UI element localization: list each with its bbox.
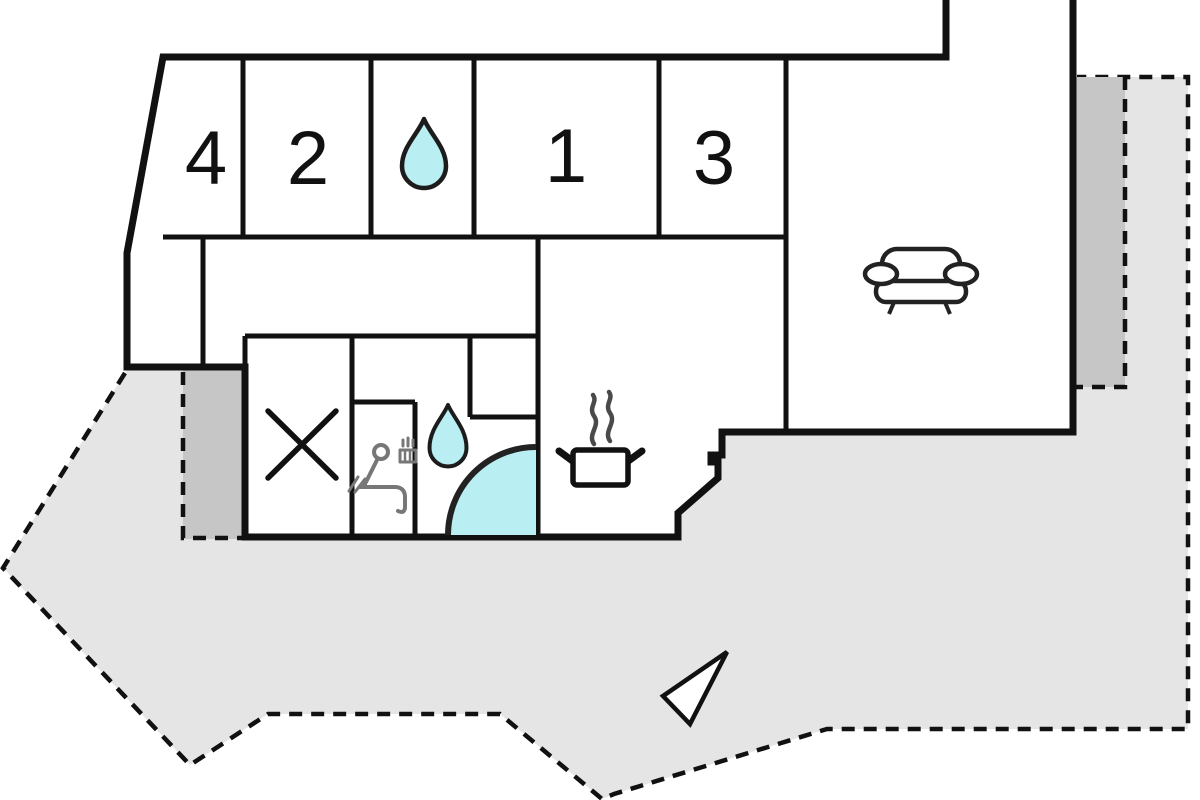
room-3-label: 3	[693, 116, 735, 201]
sofa-armrest-left	[865, 264, 897, 284]
room-4-label: 4	[185, 116, 227, 201]
room-1-label: 1	[545, 114, 587, 199]
floor-plan-canvas: 4 2 1 3	[0, 0, 1200, 800]
pot-body	[573, 450, 628, 485]
sofa-armrest-right	[945, 264, 977, 284]
terrace-dark-strip-left	[183, 369, 245, 539]
room-2-label: 2	[287, 116, 329, 201]
terrace-dark-strip-right	[1073, 77, 1125, 387]
floor-plan-drawing: 4 2 1 3	[0, 0, 1200, 800]
